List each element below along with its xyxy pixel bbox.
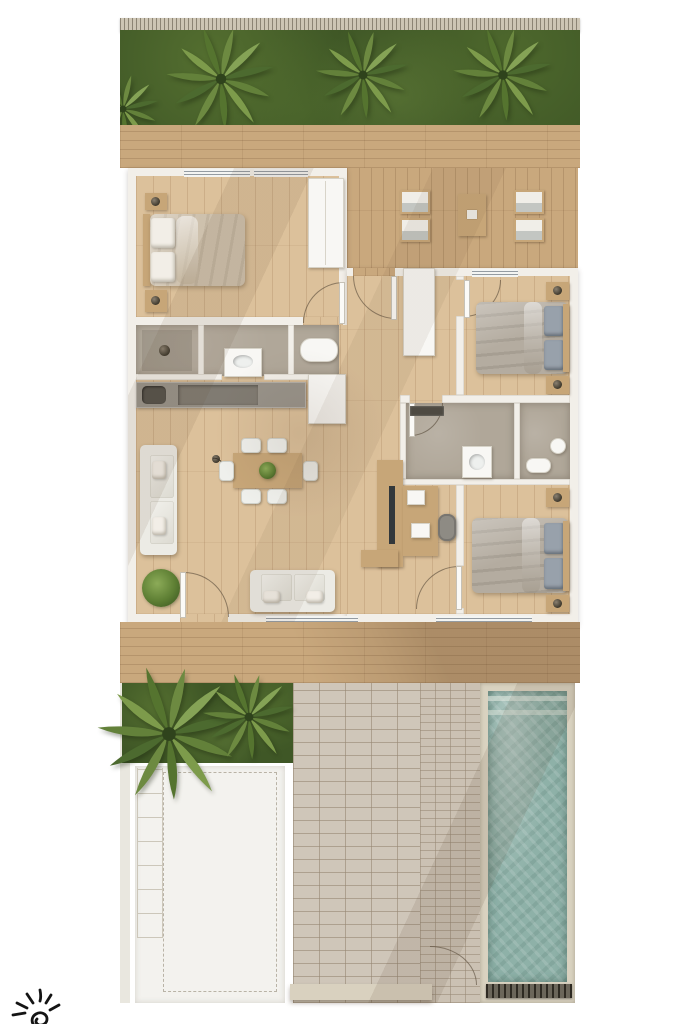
palm-tree (450, 30, 556, 125)
wardrobe-seam (325, 181, 326, 265)
table-lamp (553, 599, 562, 608)
bedroom1-wardrobe (308, 178, 344, 268)
kitchen-counter (136, 382, 306, 408)
bed3-pillow (544, 523, 564, 554)
sofa-long (140, 445, 177, 555)
table-lamp (151, 296, 160, 305)
bedroom1-window (254, 169, 308, 177)
table-lamp (553, 286, 562, 295)
terrace-door-gap (353, 268, 395, 276)
toilet (526, 458, 551, 473)
palm-tree (120, 70, 162, 125)
dining-chair (241, 489, 261, 504)
bedroom3-door-leaf (456, 566, 462, 610)
bedroom1-window (184, 169, 250, 177)
bedroom2-wall (456, 316, 464, 395)
bed1-nightstand (145, 290, 167, 312)
dining-chair (241, 438, 261, 453)
brick-patio (293, 683, 420, 1003)
palm-tree (313, 30, 413, 125)
hallway-closet (403, 268, 435, 356)
dining-chair (303, 461, 318, 481)
bed2-pillow (544, 340, 564, 370)
bedroom2-wall (456, 276, 464, 280)
bath-block-wall (400, 395, 410, 403)
back-deck (120, 125, 580, 168)
back-garden (120, 30, 580, 125)
pool-step (488, 696, 567, 701)
floor-plan-render (120, 18, 580, 1008)
palm-tree (200, 668, 298, 766)
bed2-nightstand (546, 376, 569, 394)
cooktop (178, 385, 258, 405)
bed1-pillow (151, 252, 175, 282)
bed2-headboard (563, 304, 569, 372)
office-chair (438, 514, 456, 541)
loveseat (250, 570, 335, 612)
kitchen-sink (142, 386, 166, 404)
table-lamp (151, 197, 160, 206)
sofa-pillow (152, 517, 166, 535)
bathtub (300, 338, 338, 362)
shower-shelf (410, 406, 444, 416)
entry-door-leaf (180, 572, 186, 618)
table-lamp (553, 493, 562, 502)
bed1-headboard (143, 214, 150, 286)
bed2-blanket-fold (524, 302, 542, 374)
pool-overflow-grate (486, 984, 572, 998)
vanity-sink (224, 348, 262, 377)
table-plant (259, 462, 276, 479)
bath-lower-wall (136, 374, 222, 380)
potted-plant (142, 569, 180, 607)
sink-basin (233, 355, 253, 368)
terrace-chair (514, 218, 544, 242)
bed3-nightstand (546, 488, 569, 507)
tv-screen (389, 486, 395, 544)
bed1-pillow (151, 218, 175, 248)
terrace-chair (400, 218, 430, 242)
bed3-nightstand (546, 595, 569, 612)
pool-step (488, 710, 567, 715)
bed1-blanket-fold (176, 216, 198, 284)
sofa-pillow (306, 591, 323, 603)
laptop (411, 523, 430, 538)
sun-doodle-logo (10, 988, 68, 1024)
round-sink (550, 438, 566, 454)
bedroom1-door-leaf (339, 282, 345, 324)
office-desk (403, 486, 438, 556)
terrace-side-table (458, 194, 486, 236)
bedroom3-wall (456, 485, 464, 566)
bed3-headboard (563, 521, 569, 591)
dining-chair (267, 489, 287, 504)
sofa-pillow (152, 461, 166, 479)
bath-block-wall (400, 479, 570, 485)
bedroom2-door-leaf (464, 280, 470, 318)
gate-threshold (290, 984, 432, 1000)
tub-partition (288, 325, 294, 376)
shower-drain (159, 345, 170, 356)
bathroom2-sink (462, 446, 492, 478)
terrace-chair (514, 190, 544, 214)
dining-chair (219, 461, 234, 481)
bed3-pillow (544, 558, 564, 589)
shower-partition (198, 325, 204, 376)
table-lamp (553, 380, 562, 389)
bed2-pillow (544, 306, 564, 336)
pool-water (488, 691, 567, 982)
bed2-nightstand (546, 282, 569, 300)
terrace-chair (400, 190, 430, 214)
bed3-blanket-fold (522, 518, 540, 593)
tall-cabinet (308, 374, 346, 424)
sofa-pillow (263, 591, 280, 603)
floor-plan-page (0, 0, 697, 1024)
bath-block-wall (442, 395, 570, 403)
sink-basin (469, 454, 485, 470)
dining-chair (267, 438, 287, 453)
hall-sideboard (361, 550, 398, 567)
bedroom2-window (472, 269, 518, 277)
palm-tree (163, 30, 279, 125)
printer (407, 490, 425, 505)
table-tray (467, 210, 477, 219)
terrace-door-leaf (391, 276, 397, 320)
bed1-nightstand (145, 193, 167, 210)
